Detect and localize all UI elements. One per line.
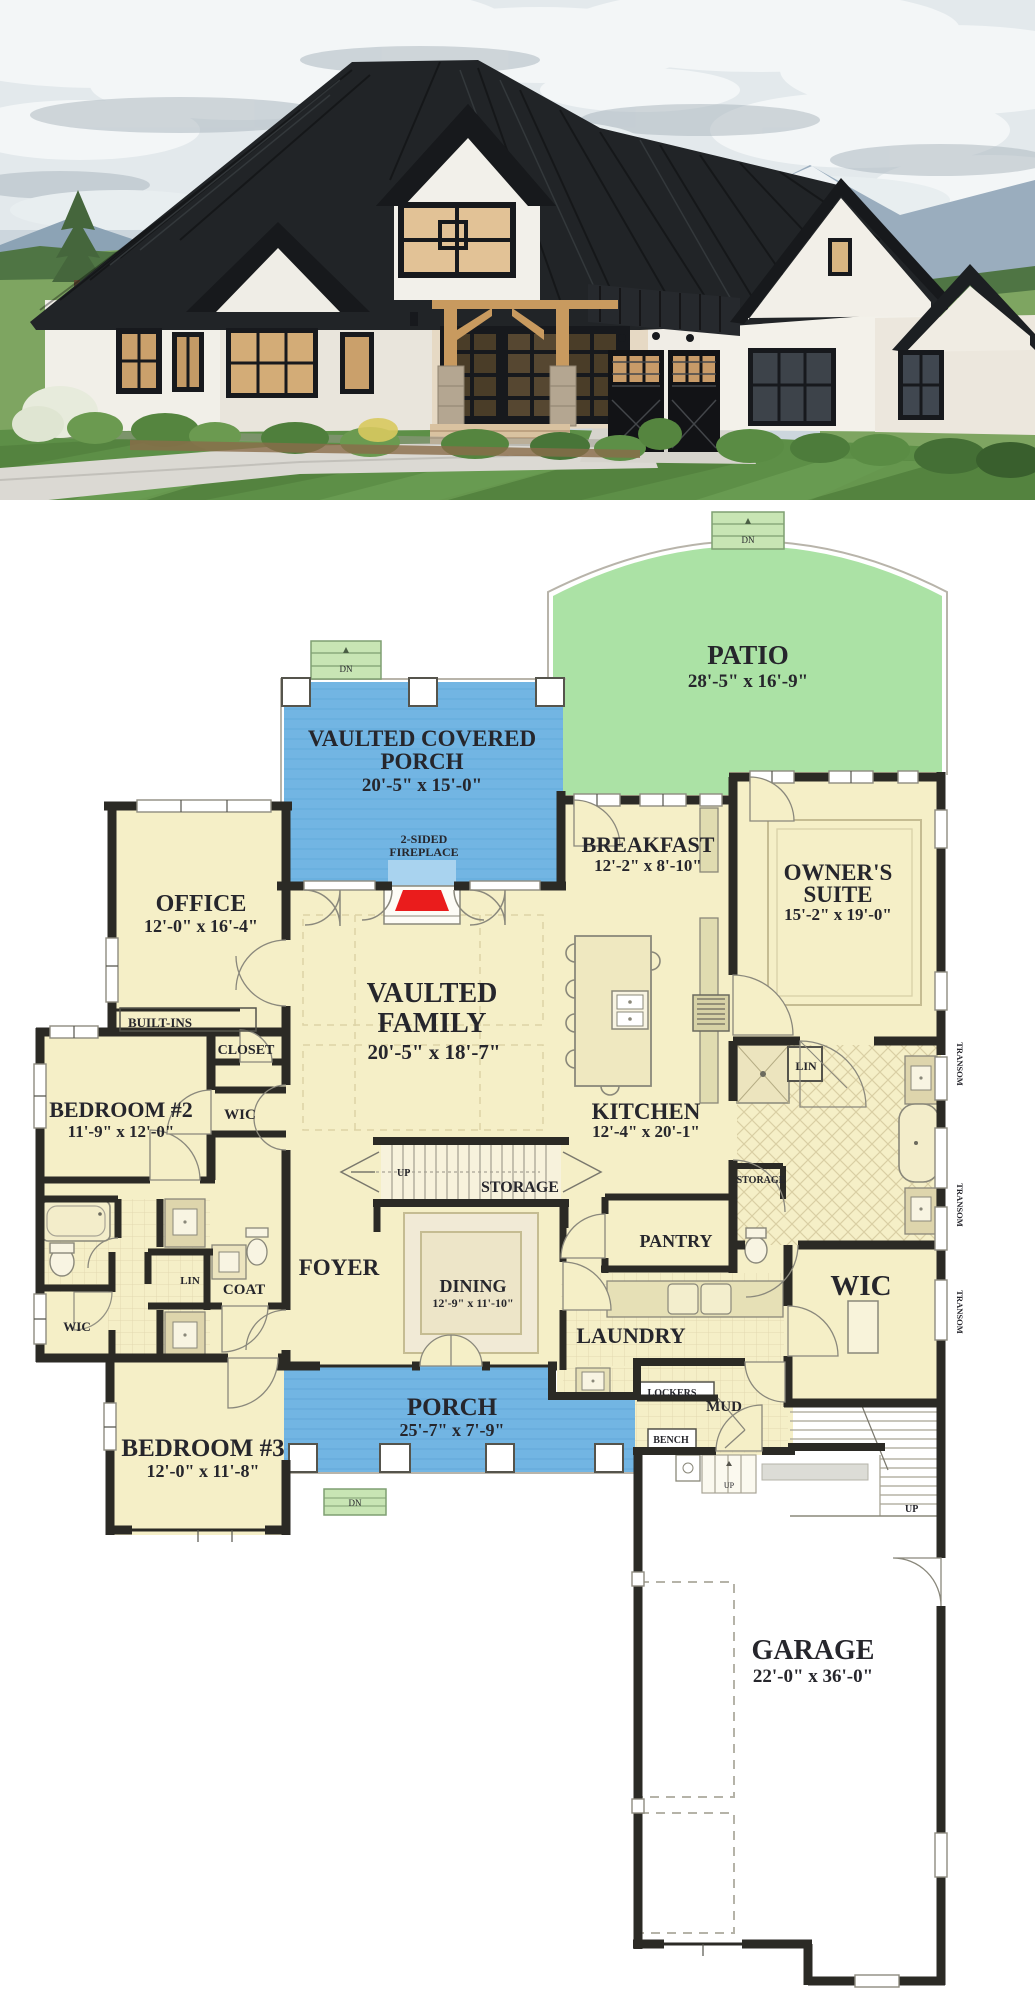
- svg-text:12'-0" x 11'-8": 12'-0" x 11'-8": [147, 1461, 260, 1481]
- svg-text:WIC: WIC: [224, 1107, 256, 1123]
- svg-text:BUILT-INS: BUILT-INS: [128, 1015, 192, 1030]
- svg-text:BEDROOM #3: BEDROOM #3: [121, 1435, 284, 1462]
- svg-text:LIN: LIN: [180, 1275, 200, 1287]
- svg-text:DN: DN: [340, 664, 353, 674]
- svg-text:12'-2" x 8'-10": 12'-2" x 8'-10": [594, 856, 702, 875]
- svg-text:12'-9" x 11'-10": 12'-9" x 11'-10": [432, 1296, 513, 1310]
- svg-text:20'-5" x 18'-7": 20'-5" x 18'-7": [368, 1040, 501, 1064]
- svg-text:SUITE: SUITE: [803, 882, 872, 907]
- svg-text:FIREPLACE: FIREPLACE: [389, 845, 458, 859]
- svg-text:2-SIDED: 2-SIDED: [401, 832, 448, 846]
- svg-text:BENCH: BENCH: [653, 1435, 689, 1446]
- svg-text:GARAGE: GARAGE: [752, 1635, 875, 1666]
- svg-text:TRANSOM: TRANSOM: [955, 1042, 965, 1085]
- svg-text:11'-9" x 12'-0": 11'-9" x 12'-0": [68, 1122, 175, 1141]
- svg-text:WIC: WIC: [63, 1319, 90, 1334]
- svg-text:28'-5" x 16'-9": 28'-5" x 16'-9": [688, 671, 808, 692]
- svg-text:PATIO: PATIO: [707, 640, 789, 670]
- svg-text:WIC: WIC: [830, 1270, 891, 1302]
- svg-text:UP: UP: [397, 1168, 410, 1179]
- svg-text:DN: DN: [742, 535, 755, 545]
- svg-text:LIN: LIN: [795, 1059, 817, 1073]
- svg-text:12'-4" x 20'-1": 12'-4" x 20'-1": [592, 1122, 700, 1141]
- svg-text:15'-2" x 19'-0": 15'-2" x 19'-0": [784, 905, 892, 924]
- svg-text:STORAGE: STORAGE: [481, 1179, 559, 1196]
- svg-text:VAULTED: VAULTED: [367, 978, 498, 1009]
- svg-text:COAT: COAT: [223, 1282, 265, 1298]
- svg-text:VAULTED COVERED: VAULTED COVERED: [308, 726, 536, 751]
- svg-text:CLOSET: CLOSET: [218, 1043, 275, 1058]
- svg-text:TRANSOM: TRANSOM: [955, 1183, 965, 1226]
- svg-text:FOYER: FOYER: [299, 1255, 380, 1280]
- svg-text:25'-7" x 7'-9": 25'-7" x 7'-9": [400, 1420, 505, 1440]
- svg-text:DINING: DINING: [439, 1276, 506, 1296]
- svg-text:UP: UP: [905, 1504, 918, 1515]
- svg-text:TRANSOM: TRANSOM: [955, 1290, 965, 1333]
- svg-text:STORAGE: STORAGE: [737, 1175, 786, 1186]
- svg-text:FAMILY: FAMILY: [378, 1008, 487, 1039]
- svg-text:LAUNDRY: LAUNDRY: [576, 1323, 685, 1348]
- svg-text:BEDROOM #2: BEDROOM #2: [49, 1097, 193, 1122]
- svg-text:20'-5" x 15'-0": 20'-5" x 15'-0": [362, 775, 482, 796]
- svg-text:PORCH: PORCH: [407, 1394, 498, 1421]
- svg-text:12'-0" x 16'-4": 12'-0" x 16'-4": [144, 916, 258, 936]
- svg-text:LOCKERS: LOCKERS: [648, 1388, 697, 1399]
- svg-text:22'-0" x 36'-0": 22'-0" x 36'-0": [753, 1666, 873, 1687]
- svg-text:OFFICE: OFFICE: [156, 891, 247, 917]
- svg-text:UP: UP: [724, 1481, 735, 1490]
- svg-text:PANTRY: PANTRY: [639, 1231, 712, 1251]
- svg-text:PORCH: PORCH: [380, 749, 463, 774]
- svg-text:KITCHEN: KITCHEN: [592, 1099, 701, 1124]
- svg-text:BREAKFAST: BREAKFAST: [582, 832, 715, 857]
- svg-text:DN: DN: [349, 1498, 362, 1508]
- svg-text:MUD: MUD: [706, 1399, 742, 1415]
